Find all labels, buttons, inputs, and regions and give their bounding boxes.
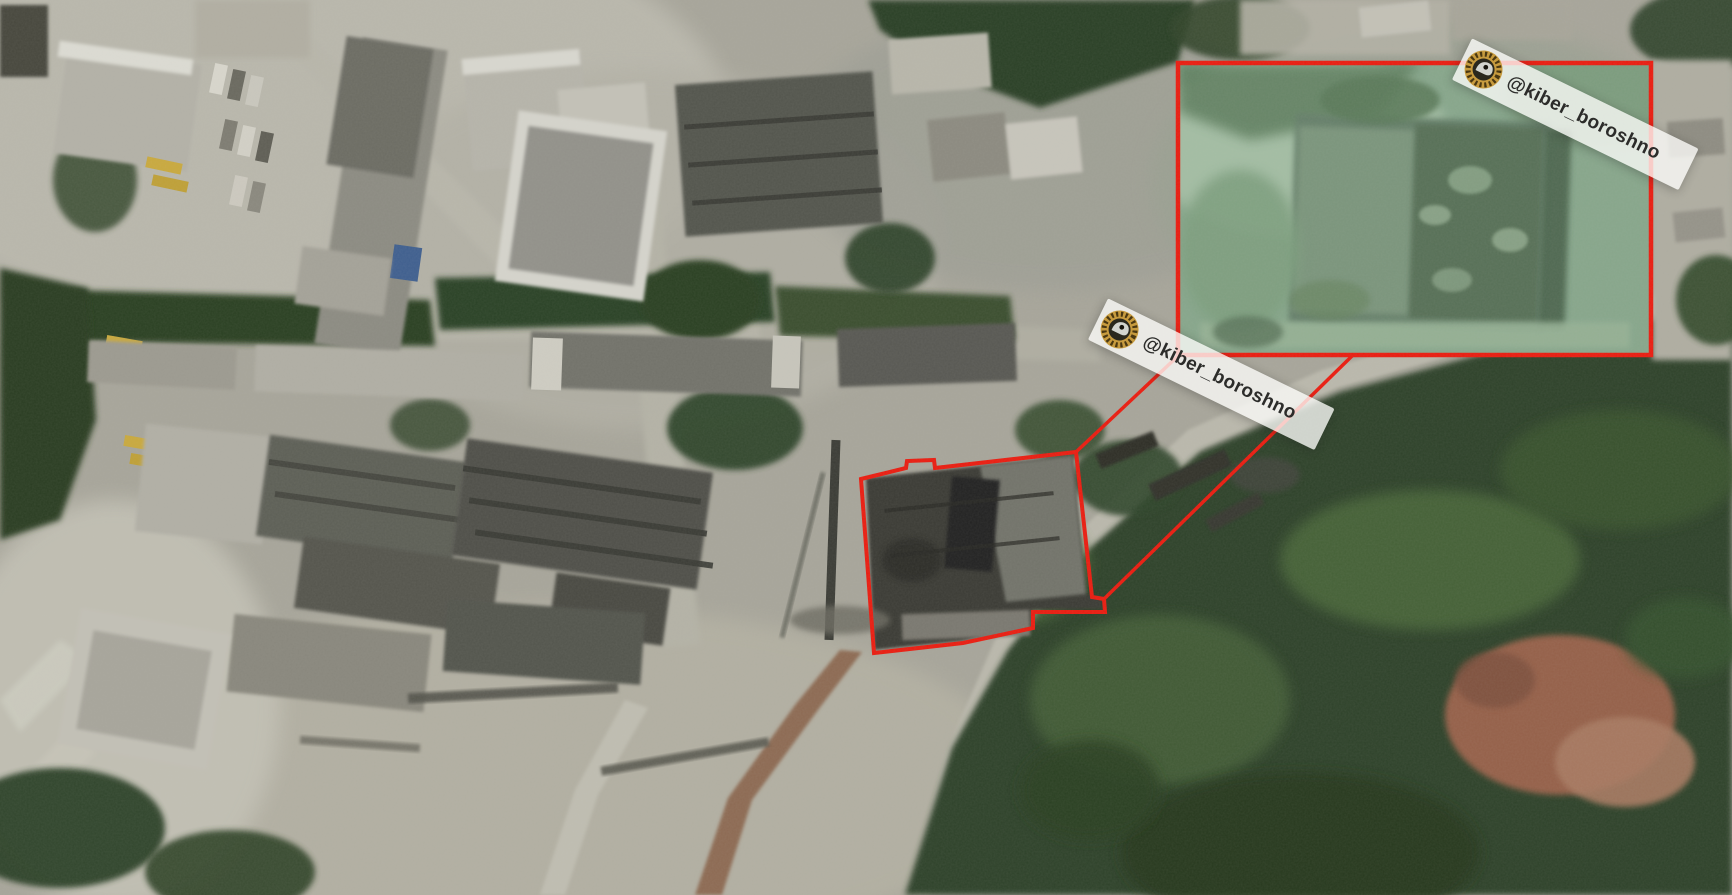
grain-overlay (0, 0, 1732, 895)
screenshot-root: @kiber_boroshno @kiber_boroshno (0, 0, 1732, 895)
satellite-image (0, 0, 1732, 895)
